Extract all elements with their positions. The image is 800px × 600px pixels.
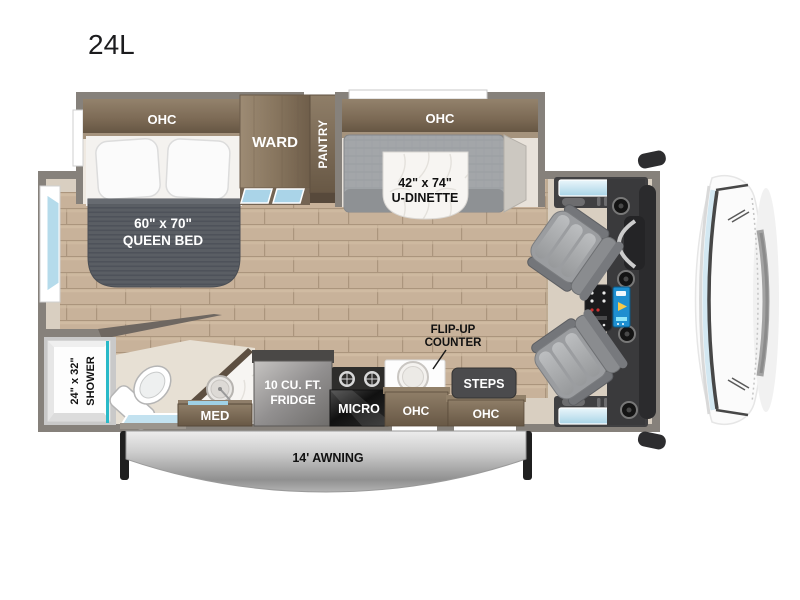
micro-label: MICRO [338,402,380,416]
fridge: 10 CU. FT. FRIDGE [252,350,334,426]
microwave: MICRO [330,390,388,426]
ohc-kitchen-label: OHC [403,404,430,418]
shower: 24" x 32" SHOWER [44,337,116,425]
shower-size-label: 24" x 32" [69,357,81,404]
speaker-icon [619,326,635,342]
cooktop [332,367,388,391]
dinette-name-label: U-DINETTE [392,191,459,205]
dinette-size-label: 42" x 74" [398,176,452,190]
bed-size-label: 60" x 70" [134,216,192,231]
steps-label: STEPS [464,377,505,391]
entry-steps: STEPS [452,368,516,398]
awning-label: 14' AWNING [292,451,363,465]
flip-up-label-1: FLIP-UP [431,324,476,336]
dinette-slide-window [349,90,487,99]
med-label: MED [201,408,230,423]
floor-transition [546,179,548,424]
u-dinette: 42" x 74" U-DINETTE [344,135,526,219]
ohc-kitchen: OHC [383,387,450,426]
glass-pane [273,189,304,203]
ohc-bed-label: OHC [148,112,178,127]
pantry: PANTRY [310,95,337,203]
speaker-icon [621,402,637,418]
shower-name-label: SHOWER [85,356,97,406]
fridge-label-2: FRIDGE [270,393,315,407]
page-title: 24L [88,29,135,60]
speaker-icon [613,198,629,214]
bath-window-step [120,414,186,429]
flip-up-label-2: COUNTER [425,337,483,349]
side-mirror-icon [637,149,668,169]
wardrobe: WARD [240,95,310,205]
awning: 14' AWNING [120,431,532,492]
ohc-entry-label: OHC [473,407,500,421]
queen-bed: 60" x 70" QUEEN BED [86,136,242,287]
bed-name-label: QUEEN BED [123,233,204,248]
fridge-label-1: 10 CU. FT. [264,378,321,392]
infotainment-screen [613,287,630,327]
ohc-dinette-label: OHC [426,111,456,126]
pillow [166,138,231,199]
side-mirror-icon [637,430,668,450]
pantry-label: PANTRY [318,120,330,169]
bed-slide-window [73,110,83,166]
ohc-entry: OHC [446,395,526,426]
floorplan-canvas: 24L OHC 60" x 70" QUEEN BED [0,0,800,600]
front-cap [696,176,780,425]
glass-pane [241,189,272,203]
speaker-icon [618,271,634,287]
pillow [95,138,161,200]
med-cabinet: MED [178,400,252,426]
bath-wall [38,329,102,337]
ward-label: WARD [252,134,298,151]
shower-glass-door [106,341,109,423]
rear-window [40,186,60,302]
